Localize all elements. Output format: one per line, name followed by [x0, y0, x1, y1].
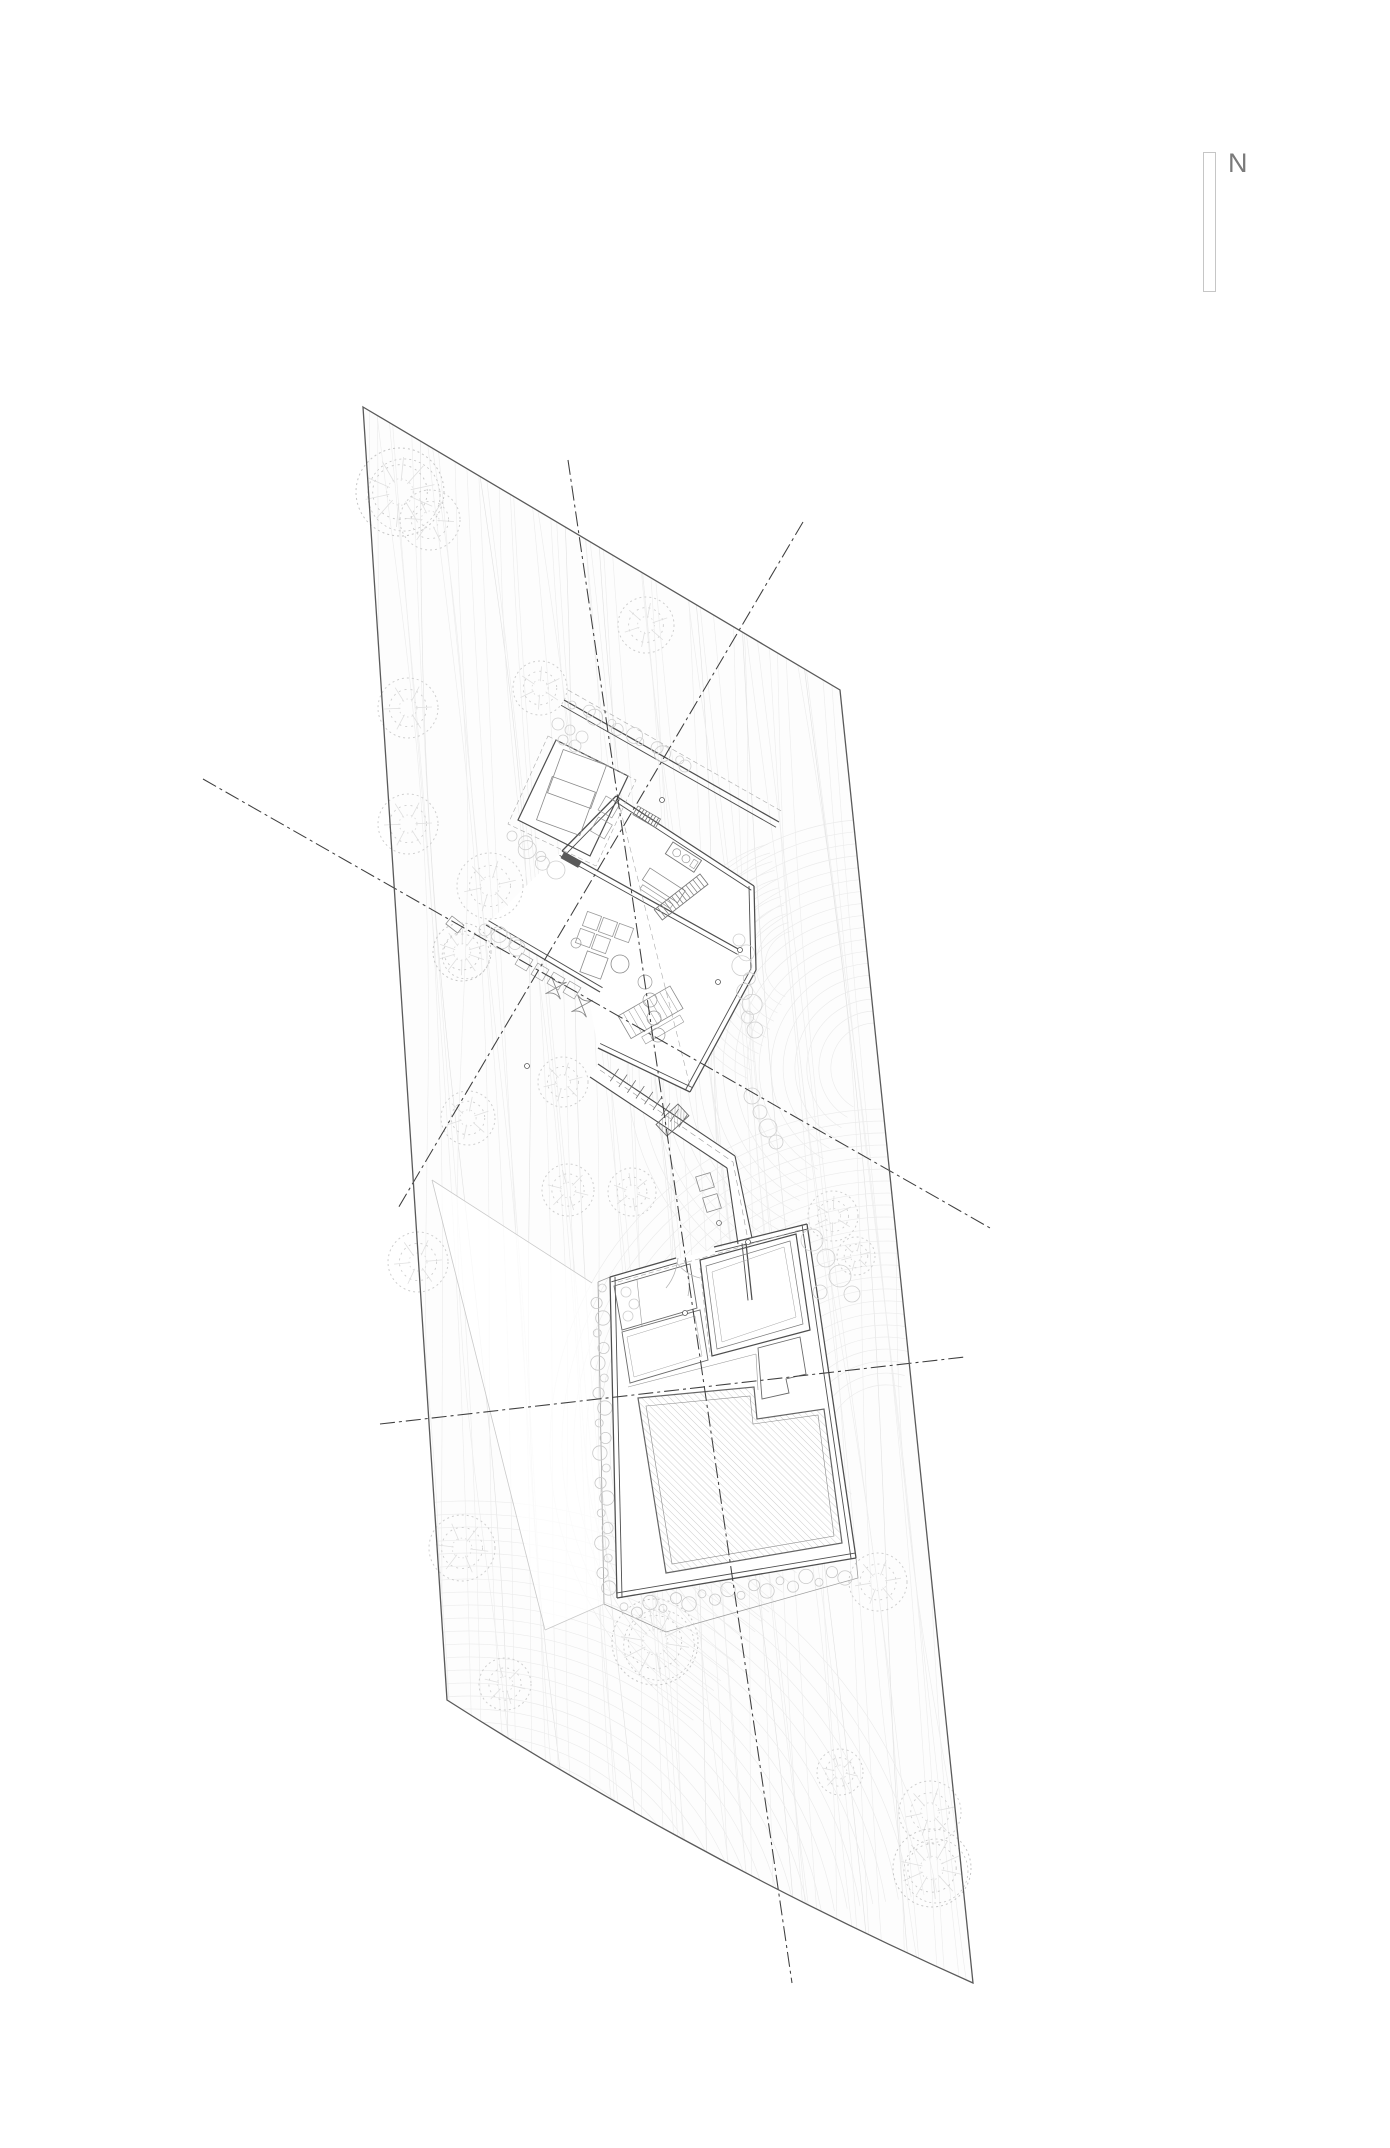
- north-label: N: [1228, 148, 1249, 179]
- north-indicator-bar: [1203, 152, 1216, 292]
- site-plan-drawing: [0, 0, 1390, 2148]
- site-plan-canvas: N: [0, 0, 1390, 2148]
